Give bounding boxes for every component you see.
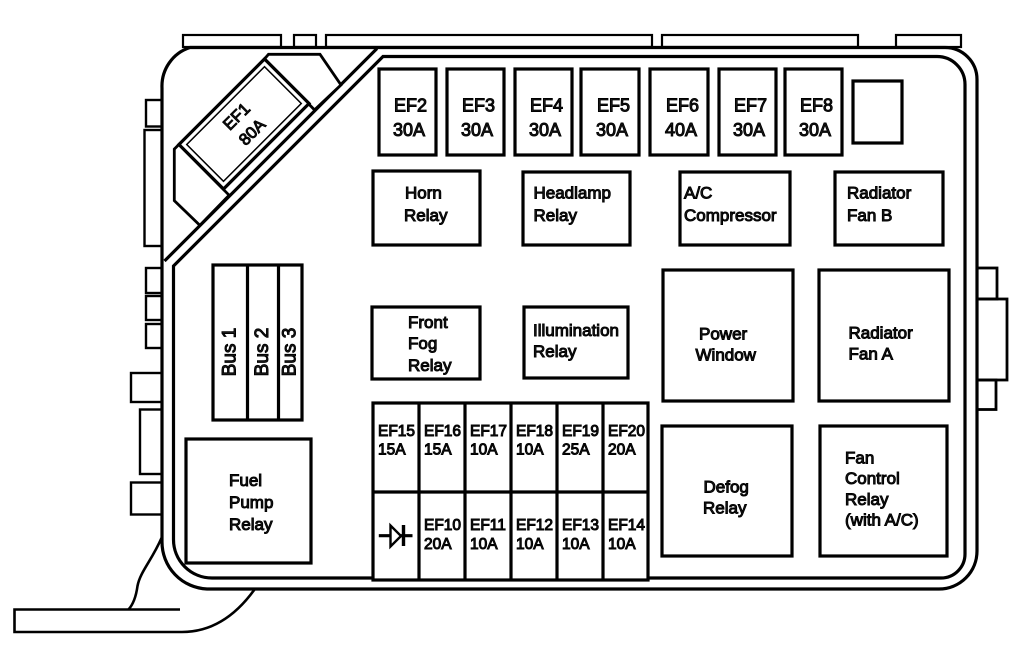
svg-text:Relay: Relay xyxy=(845,490,889,509)
svg-text:30A: 30A xyxy=(596,120,628,140)
svg-text:Relay: Relay xyxy=(229,515,273,534)
svg-text:Relay: Relay xyxy=(703,499,747,518)
svg-text:EF12: EF12 xyxy=(516,517,553,534)
svg-text:30A: 30A xyxy=(529,120,561,140)
svg-text:Relay: Relay xyxy=(404,206,448,225)
svg-text:30A: 30A xyxy=(799,120,831,140)
svg-text:30A: 30A xyxy=(393,120,425,140)
svg-text:Pump: Pump xyxy=(229,493,273,512)
svg-text:10A: 10A xyxy=(608,536,636,553)
svg-text:Fog: Fog xyxy=(408,334,437,353)
svg-text:Illumination: Illumination xyxy=(533,321,619,340)
svg-text:EF10: EF10 xyxy=(424,517,461,534)
svg-text:Relay: Relay xyxy=(408,356,452,375)
svg-text:EF15: EF15 xyxy=(378,423,415,440)
svg-text:EF20: EF20 xyxy=(608,423,645,440)
svg-text:10A: 10A xyxy=(562,536,590,553)
svg-text:25A: 25A xyxy=(562,442,590,459)
svg-text:Radiator: Radiator xyxy=(847,184,912,203)
svg-text:Front: Front xyxy=(408,313,448,332)
svg-text:EF6: EF6 xyxy=(666,96,699,116)
svg-text:Fan: Fan xyxy=(845,449,874,468)
svg-text:EF16: EF16 xyxy=(424,423,461,440)
svg-text:10A: 10A xyxy=(516,536,544,553)
svg-text:Horn: Horn xyxy=(405,184,442,203)
svg-text:EF14: EF14 xyxy=(608,517,645,534)
svg-text:EF18: EF18 xyxy=(516,423,553,440)
svg-text:Fuel: Fuel xyxy=(229,471,262,490)
svg-text:10A: 10A xyxy=(470,442,498,459)
svg-text:Control: Control xyxy=(845,469,900,488)
svg-text:20A: 20A xyxy=(608,442,636,459)
svg-text:30A: 30A xyxy=(733,120,765,140)
svg-text:EF3: EF3 xyxy=(462,96,495,116)
svg-text:10A: 10A xyxy=(516,442,544,459)
svg-text:Bus 1: Bus 1 xyxy=(220,328,241,377)
svg-text:10A: 10A xyxy=(470,536,498,553)
svg-text:Window: Window xyxy=(696,346,757,365)
svg-text:Radiator: Radiator xyxy=(849,324,914,343)
svg-text:(with A/C): (with A/C) xyxy=(845,511,919,530)
svg-text:Defog: Defog xyxy=(704,478,749,497)
svg-text:Power: Power xyxy=(699,325,748,344)
svg-text:EF13: EF13 xyxy=(562,517,599,534)
svg-text:EF17: EF17 xyxy=(470,423,507,440)
svg-text:EF4: EF4 xyxy=(530,96,563,116)
svg-text:30A: 30A xyxy=(461,120,493,140)
svg-text:EF11: EF11 xyxy=(470,517,506,534)
svg-text:15A: 15A xyxy=(378,442,406,459)
svg-text:A/C: A/C xyxy=(684,184,712,203)
svg-text:Bus 2: Bus 2 xyxy=(252,328,273,377)
svg-text:Relay: Relay xyxy=(533,342,577,361)
svg-text:EF2: EF2 xyxy=(394,96,427,116)
svg-text:20A: 20A xyxy=(424,536,452,553)
svg-text:Relay: Relay xyxy=(534,206,578,225)
svg-text:Fan A: Fan A xyxy=(849,345,894,364)
svg-text:15A: 15A xyxy=(424,442,452,459)
svg-text:EF7: EF7 xyxy=(734,96,767,116)
svg-text:Fan B: Fan B xyxy=(847,206,892,225)
svg-text:EF8: EF8 xyxy=(800,96,833,116)
svg-text:EF5: EF5 xyxy=(597,96,630,116)
svg-text:Headlamp: Headlamp xyxy=(534,184,612,203)
svg-text:EF19: EF19 xyxy=(562,423,599,440)
svg-text:Bus 3: Bus 3 xyxy=(280,328,301,377)
svg-text:40A: 40A xyxy=(665,120,697,140)
svg-text:Compressor: Compressor xyxy=(684,206,777,225)
